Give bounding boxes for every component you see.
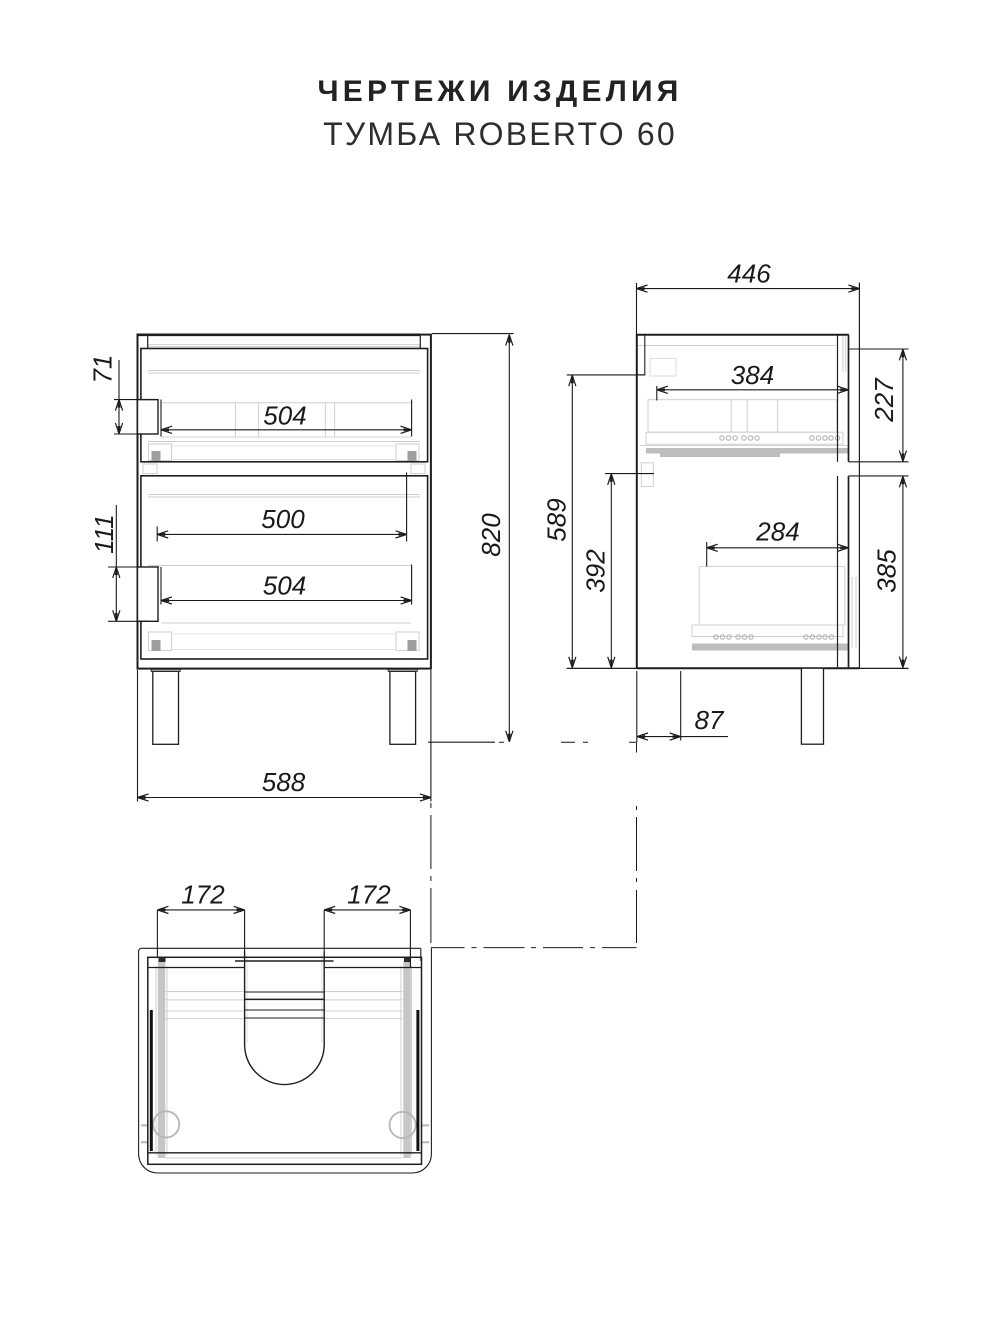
svg-text:446: 446 [727,259,771,289]
svg-text:589: 589 [542,498,572,541]
svg-text:500: 500 [261,504,305,534]
svg-text:385: 385 [872,549,902,593]
svg-text:111: 111 [89,514,119,554]
svg-text:172: 172 [181,880,225,910]
svg-text:820: 820 [476,513,506,557]
svg-text:71: 71 [88,355,118,384]
svg-text:392: 392 [581,549,611,593]
svg-text:284: 284 [755,517,799,547]
svg-text:87: 87 [695,705,725,735]
svg-text:172: 172 [347,880,391,910]
svg-text:588: 588 [262,767,306,797]
svg-text:504: 504 [263,400,306,430]
svg-text:504: 504 [263,571,306,601]
svg-text:384: 384 [731,360,774,390]
svg-text:227: 227 [869,377,899,423]
